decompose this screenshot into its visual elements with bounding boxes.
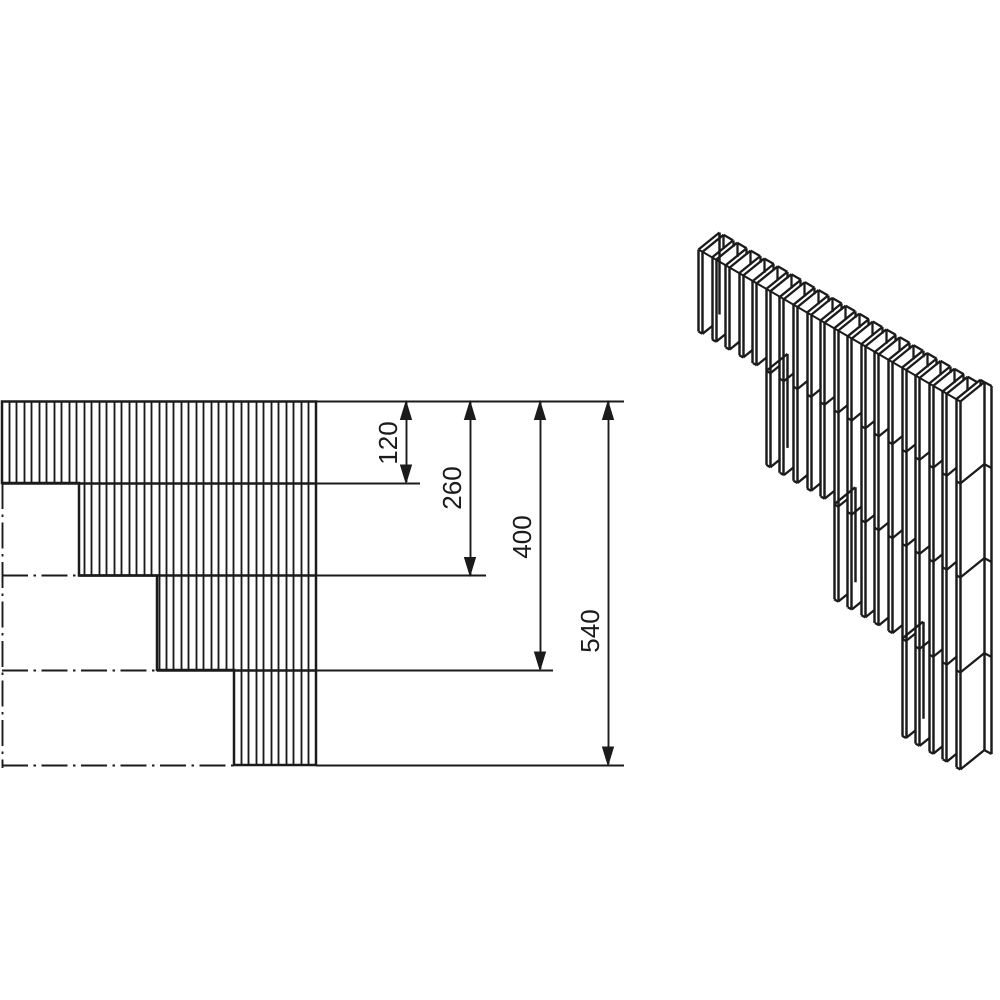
svg-text:120: 120 bbox=[373, 421, 403, 464]
svg-text:540: 540 bbox=[575, 609, 605, 652]
svg-text:260: 260 bbox=[437, 466, 467, 509]
svg-text:400: 400 bbox=[507, 515, 537, 558]
